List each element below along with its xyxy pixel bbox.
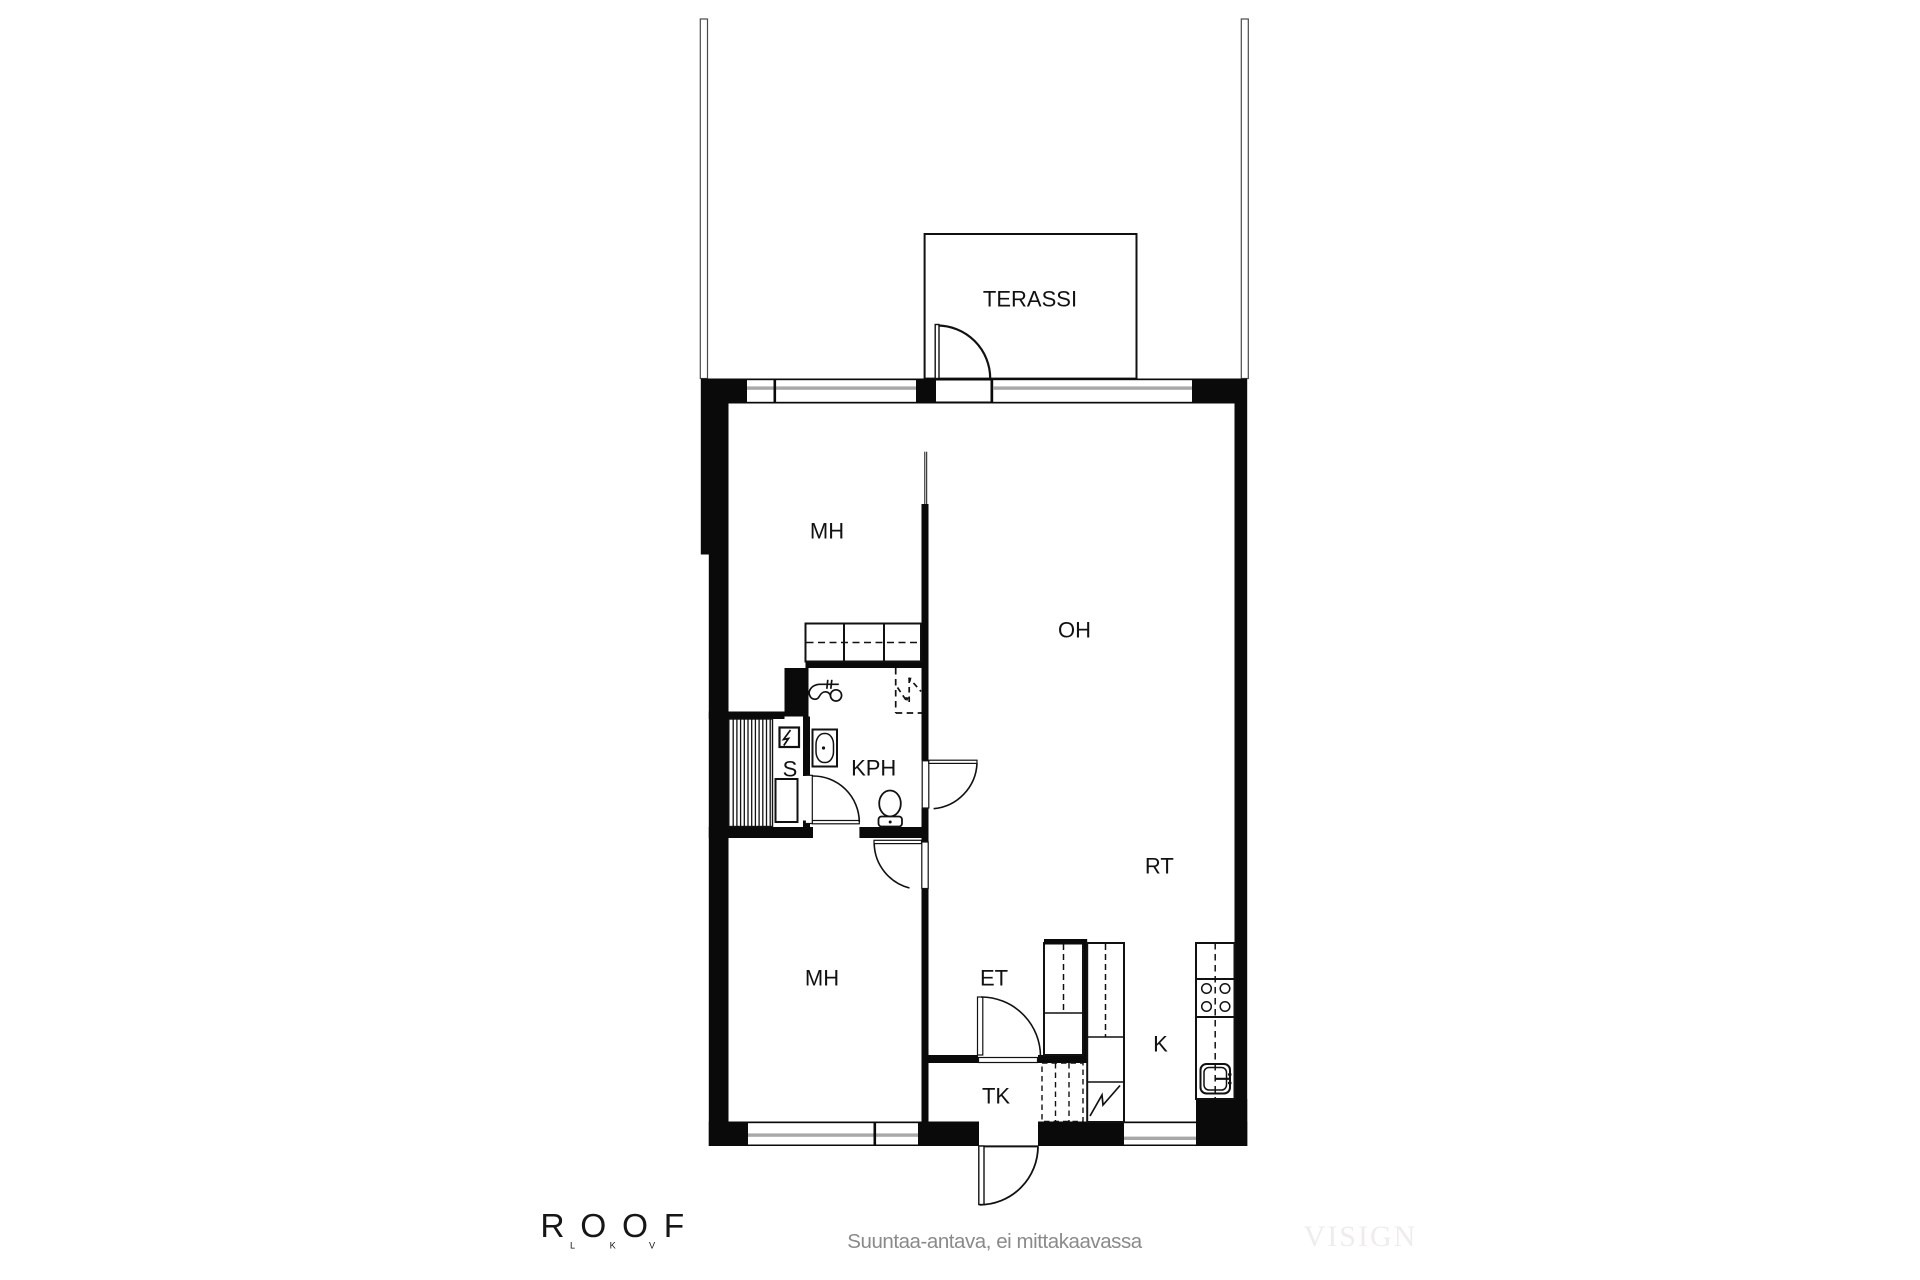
svg-text:ROOF: ROOF <box>540 1208 700 1245</box>
svg-text:RT: RT <box>1145 854 1174 879</box>
svg-text:L: L <box>570 1241 575 1251</box>
svg-text:VISIGN: VISIGN <box>1304 1220 1418 1253</box>
svg-text:S: S <box>783 757 798 782</box>
svg-text:K: K <box>610 1241 617 1251</box>
svg-text:KPH: KPH <box>851 756 896 781</box>
svg-text:Suuntaa-antava, ei mittakaavas: Suuntaa-antava, ei mittakaavassa <box>847 1230 1142 1253</box>
svg-text:TERASSI: TERASSI <box>983 287 1077 312</box>
svg-text:TK: TK <box>982 1084 1010 1109</box>
svg-text:MH: MH <box>805 966 839 991</box>
svg-text:OH: OH <box>1058 617 1091 642</box>
svg-text:ET: ET <box>980 966 1008 991</box>
svg-text:V: V <box>649 1241 656 1251</box>
svg-text:K: K <box>1153 1032 1168 1057</box>
svg-text:MH: MH <box>810 519 844 544</box>
